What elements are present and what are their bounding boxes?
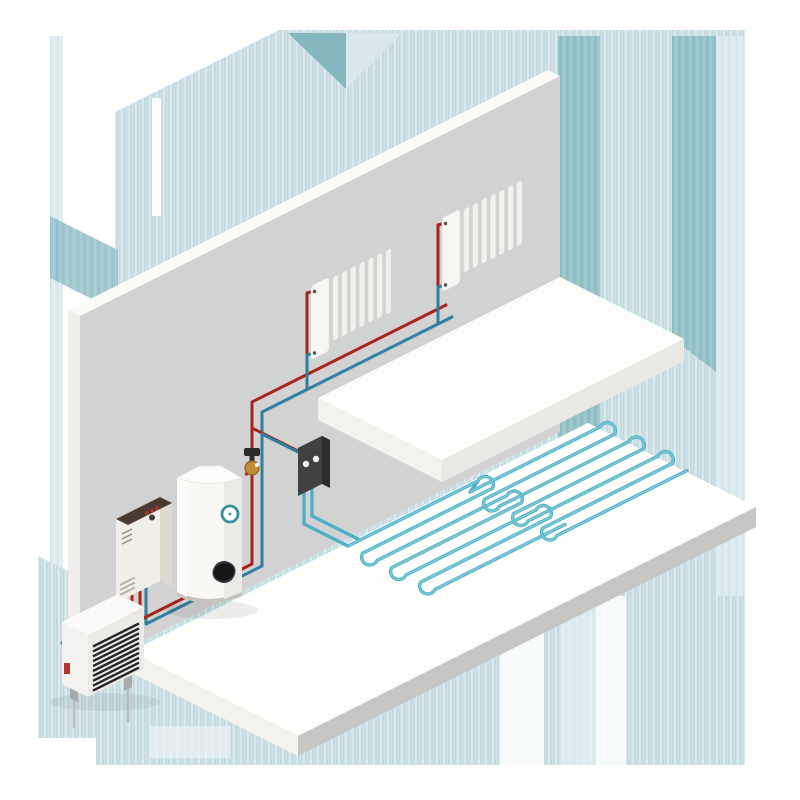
wash-white-bar-top [152,98,161,216]
wash-pale-patch-bl [150,726,230,758]
tank-shadow [166,601,258,619]
valve-cap [244,448,260,456]
radiator-2-inlet-dot [444,222,447,225]
tank-gauge-dot [229,513,232,516]
radiator-1-inlet-dot [313,290,316,293]
wash-column-right-2 [672,36,716,372]
illustration-stage [0,0,800,800]
radiator-1-outlet-dot [313,351,316,354]
heating-system-scene [0,0,800,800]
radiator-2-outlet-dot [444,283,447,286]
manifold-dial-1 [303,461,309,467]
wash-white-bar-br-2 [596,596,626,765]
valve-dot-white [255,463,259,467]
heat-pump-shadow [50,693,160,711]
valve-dot-red [245,472,249,476]
heat-pump-label [64,663,70,674]
manifold-side-face [322,436,330,488]
wash-left-strip [50,36,63,636]
heat-pump-left-face [62,622,88,697]
boiler-right-face [160,497,172,587]
manifold-dial-2 [313,456,319,462]
tank-left-facet [177,473,187,597]
